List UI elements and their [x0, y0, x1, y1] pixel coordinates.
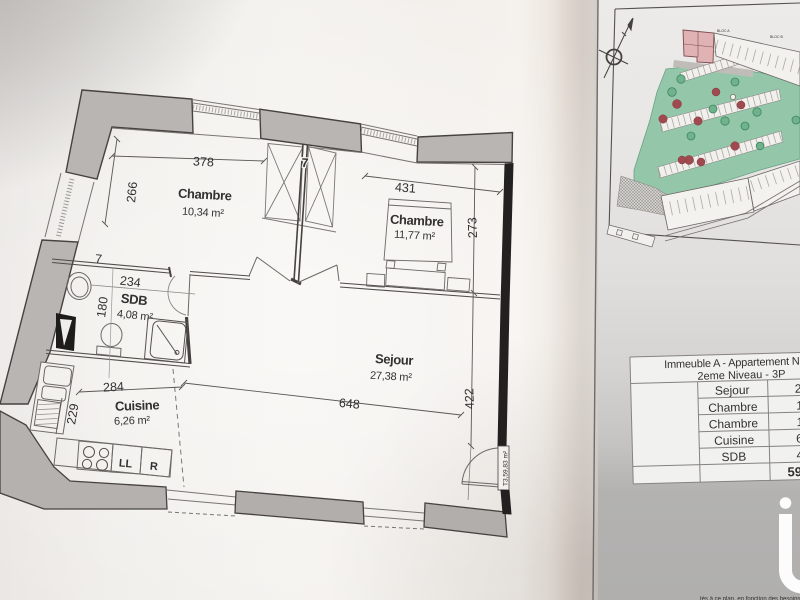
svg-text:1: 1	[796, 398, 800, 412]
svg-text:59,: 59,	[787, 464, 800, 479]
svg-text:273: 273	[465, 217, 480, 238]
svg-text:27,38 m²: 27,38 m²	[370, 370, 413, 384]
svg-text:7: 7	[301, 156, 309, 170]
svg-text:7: 7	[94, 252, 102, 267]
svg-text:180: 180	[94, 296, 111, 319]
svg-text:SDB: SDB	[120, 291, 148, 309]
svg-text:1: 1	[797, 415, 800, 429]
svg-text:229: 229	[64, 403, 81, 426]
svg-text:R: R	[149, 461, 158, 474]
svg-text:10,34 m²: 10,34 m²	[182, 206, 225, 220]
svg-text:648: 648	[338, 396, 360, 412]
svg-text:Sejour: Sejour	[715, 383, 750, 398]
svg-text:422: 422	[462, 388, 477, 409]
svg-text:Sejour: Sejour	[375, 351, 414, 368]
svg-text:284: 284	[103, 380, 125, 395]
svg-text:6: 6	[796, 431, 800, 445]
svg-text:Chambre: Chambre	[178, 186, 232, 204]
svg-text:BLOC B: BLOC B	[770, 35, 784, 39]
svg-text:2: 2	[795, 382, 800, 396]
svg-text:T3,59,83 m²: T3,59,83 m²	[503, 450, 510, 486]
svg-text:Cuisine: Cuisine	[714, 433, 755, 448]
svg-text:234: 234	[119, 274, 141, 290]
svg-text:LL: LL	[118, 457, 133, 470]
svg-text:tés à ce plan, en fonction des: tés à ce plan, en fonction des besoins e…	[700, 597, 800, 600]
svg-text:6,26 m²: 6,26 m²	[114, 414, 151, 427]
svg-text:266: 266	[124, 181, 140, 203]
svg-text:Chambre: Chambre	[390, 212, 444, 230]
svg-text:431: 431	[395, 180, 417, 195]
svg-text:4: 4	[796, 448, 800, 462]
svg-text:SDB: SDB	[721, 449, 746, 464]
svg-text:378: 378	[193, 154, 215, 169]
svg-text:BLOC A: BLOC A	[717, 29, 730, 33]
svg-text:Chambre: Chambre	[709, 416, 759, 431]
svg-text:4,08 m²: 4,08 m²	[116, 308, 153, 324]
svg-text:11,77 m²: 11,77 m²	[394, 229, 436, 243]
svg-text:Chambre: Chambre	[708, 400, 758, 415]
svg-text:2eme Niveau - 3P: 2eme Niveau - 3P	[697, 368, 785, 382]
svg-text:Cuisine: Cuisine	[115, 397, 160, 414]
